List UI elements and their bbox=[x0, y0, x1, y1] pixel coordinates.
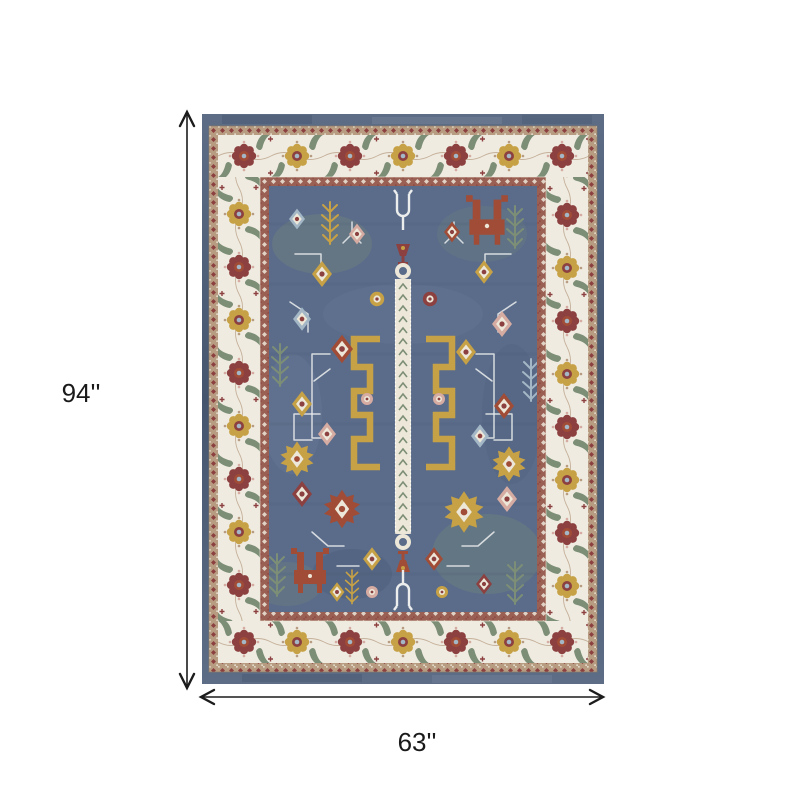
height-dimension: 94'' bbox=[62, 112, 194, 688]
width-label: 63'' bbox=[398, 727, 437, 757]
rug-image bbox=[202, 114, 604, 684]
product-dimension-diagram: 94'' 63'' bbox=[0, 0, 800, 800]
diagram-canvas: 94'' 63'' bbox=[0, 0, 800, 800]
width-dimension: 63'' bbox=[201, 690, 603, 757]
height-label: 94'' bbox=[62, 378, 101, 408]
